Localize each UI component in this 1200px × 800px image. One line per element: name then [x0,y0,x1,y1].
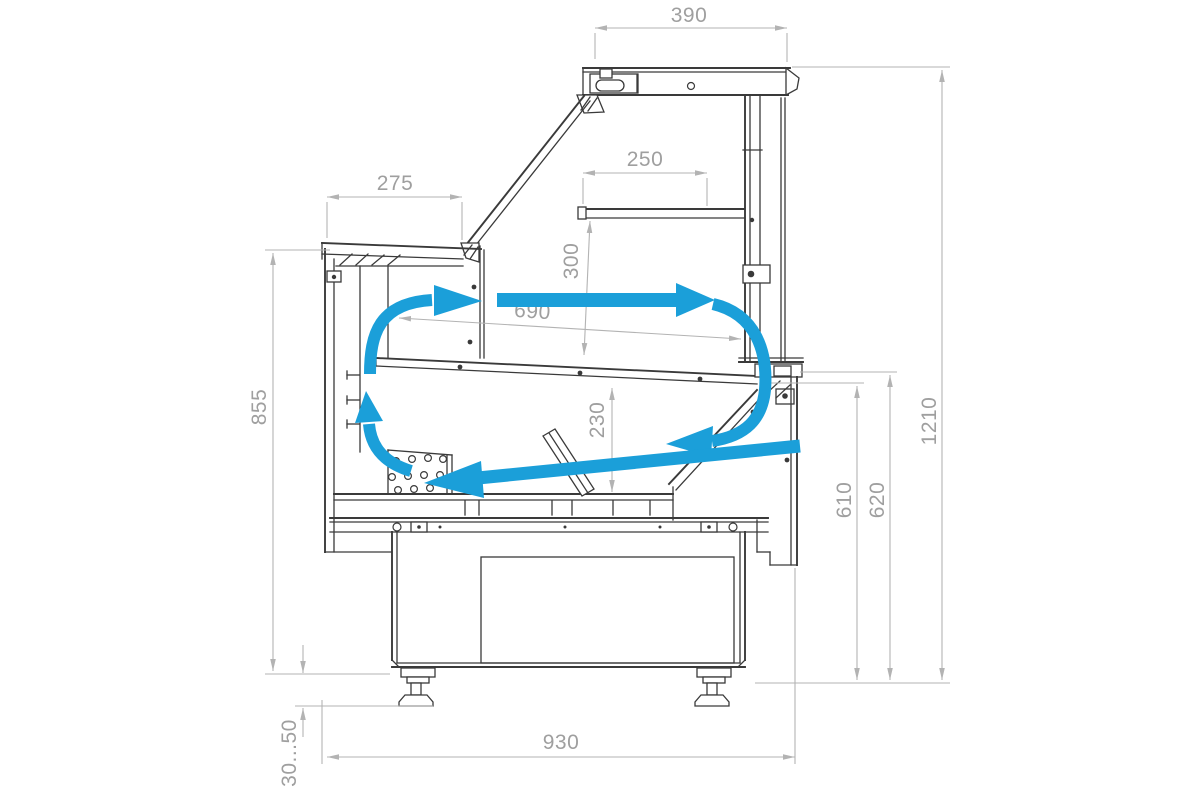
dim-front-counter-depth-label: 275 [377,172,414,195]
airflow-arrow-rise [355,391,411,471]
dim-rear-opening-outer-label: 620 [866,482,889,519]
dim-rear-opening-outer: 620 [800,372,897,680]
front-counter [322,243,481,266]
dim-front-counter-depth: 275 [327,172,462,240]
plinth-recess-panel [481,557,734,663]
dimension-annotations: 390 275 250 300 690 230 [248,4,950,787]
dim-rear-opening-inner: 610 [766,383,864,680]
front-glass [461,96,590,262]
dim-well-depth: 230 [586,388,612,492]
display-deck [376,358,757,384]
dim-shelf-to-deck-label: 300 [560,243,583,280]
shelf [578,207,744,219]
dim-shelf-depth: 250 [583,148,707,206]
dim-base-length-label: 930 [543,731,580,754]
rear-lower-panel [669,377,797,565]
airflow-arrows [355,283,800,498]
shelf-front-lip [578,207,586,219]
dim-shelf-to-deck: 300 [560,221,590,355]
dim-front-counter-height: 855 [248,250,390,674]
canopy-screw [688,83,695,90]
base-plinth [330,518,768,667]
well [334,494,673,515]
dim-canopy-depth: 390 [595,4,787,62]
dim-well-depth-label: 230 [586,402,609,439]
adjustable-foot-left [399,668,435,706]
case-structure [322,68,803,706]
canopy [577,68,799,113]
adjustable-foot-right [695,668,731,706]
well-fasteners [465,501,650,515]
dim-leg-adjustment-label: 30...50 [278,719,301,787]
dim-overall-height-label: 1210 [918,397,941,446]
rear-sliding-doors [781,98,785,361]
lamp-icon [596,80,624,91]
drawing-canvas: 390 275 250 300 690 230 [0,0,1200,800]
dim-rear-opening-inner-label: 610 [833,482,856,519]
canopy-bullnose [786,68,799,95]
shelf-bracket [743,265,770,283]
dim-canopy-depth-label: 390 [671,4,708,27]
dim-shelf-depth-label: 250 [627,148,664,171]
display-case-section-drawing: 390 275 250 300 690 230 [0,0,1200,800]
dim-front-counter-height-label: 855 [248,389,271,426]
